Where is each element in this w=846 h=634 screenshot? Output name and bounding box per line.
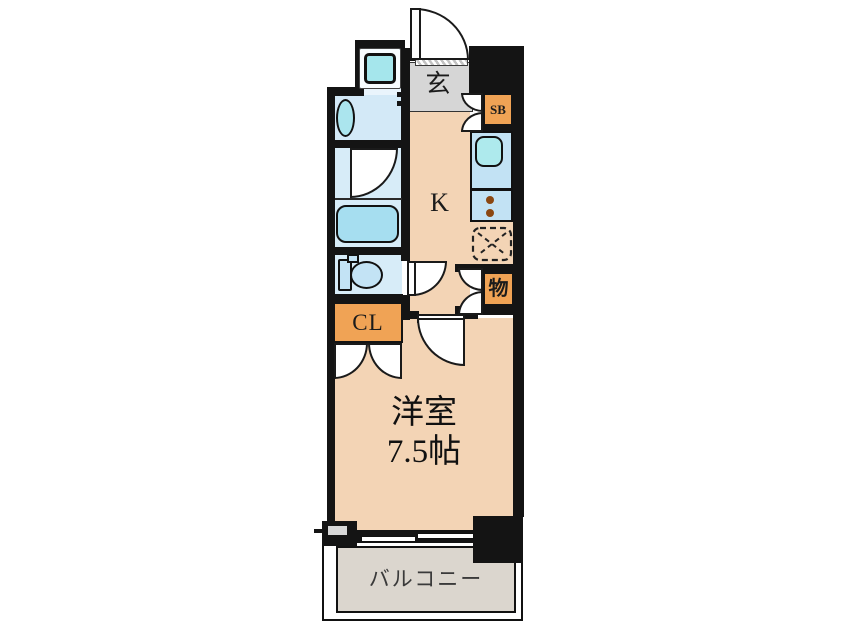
bathtub	[336, 205, 399, 243]
washing-machine	[364, 53, 396, 84]
kitchen-label: K	[409, 188, 470, 218]
wall-segment-bottom-right-block	[473, 516, 523, 563]
wall-segment	[335, 247, 402, 255]
vanity-basin	[336, 99, 355, 137]
stove-burner	[486, 196, 494, 204]
storage-box: 物	[483, 272, 514, 306]
shoe-box-label: SB	[490, 103, 506, 116]
closet-label: CL	[352, 311, 383, 334]
wall-ledge-mark	[314, 529, 327, 533]
kitchen-counter-divider	[470, 188, 513, 191]
wall-segment-top-right-block	[469, 46, 524, 93]
partition-tick	[397, 101, 403, 106]
wall-segment	[335, 140, 402, 148]
genkan-label: 玄	[409, 68, 467, 100]
balcony-window-sash-right	[417, 533, 474, 539]
balcony-label: バルコニー	[336, 564, 516, 594]
entrance-door-swing	[415, 8, 469, 60]
western-room-size: 7.5帖	[387, 436, 461, 469]
shoe-box: SB	[483, 93, 513, 126]
partition-tick	[397, 92, 403, 97]
western-room-name: 洋室	[391, 397, 457, 430]
balcony-window-latch	[415, 533, 418, 542]
wall-segment	[401, 112, 410, 261]
kitchen-sink	[475, 136, 503, 167]
wall-notch	[328, 526, 347, 535]
floor-plan: SB CL 物 玄 K 洋室 7.5帖 バルコニー	[0, 0, 846, 634]
closet-box: CL	[333, 302, 403, 343]
stove-burner	[486, 209, 494, 217]
western-room-label: 洋室 7.5帖	[335, 391, 513, 475]
toilet-handle	[347, 254, 359, 263]
balcony-window-sash-left	[361, 536, 418, 542]
storage-label: 物	[489, 279, 509, 299]
wall-segment-right-outer	[513, 93, 524, 517]
bathroom-divider-line	[335, 198, 402, 200]
toilet-bowl	[350, 261, 383, 289]
entrance-door-leaf	[410, 8, 421, 60]
toilet-door-leaf	[407, 261, 416, 296]
refrigerator-space	[471, 226, 513, 262]
